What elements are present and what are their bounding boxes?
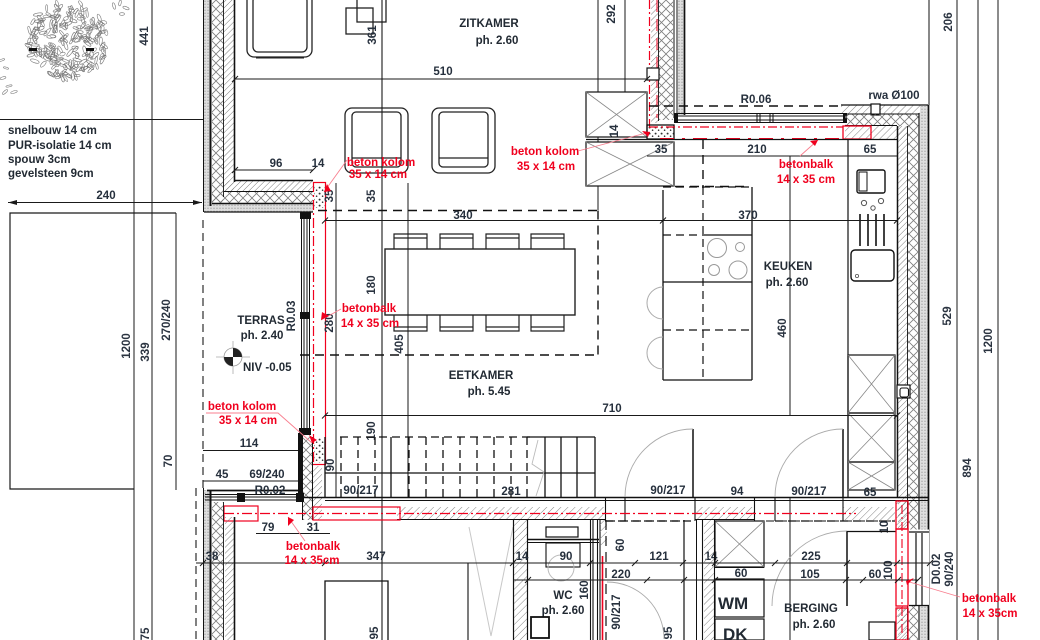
svg-text:90/217: 90/217 bbox=[343, 485, 378, 497]
svg-text:beton kolom: beton kolom bbox=[511, 146, 579, 158]
svg-text:240: 240 bbox=[96, 190, 115, 202]
svg-text:160: 160 bbox=[579, 580, 591, 599]
svg-text:90/240: 90/240 bbox=[944, 551, 956, 586]
svg-text:beton kolom: beton kolom bbox=[208, 401, 276, 413]
svg-text:60: 60 bbox=[615, 539, 627, 552]
svg-text:14 x 35cm: 14 x 35cm bbox=[285, 555, 340, 567]
svg-text:TERRAS: TERRAS bbox=[237, 315, 285, 327]
svg-text:snelbouw 14 cm: snelbouw 14 cm bbox=[8, 125, 97, 137]
svg-text:rwa Ø100: rwa Ø100 bbox=[868, 90, 919, 102]
svg-text:ph. 2.60: ph. 2.60 bbox=[476, 35, 519, 47]
svg-text:38: 38 bbox=[206, 551, 219, 563]
svg-text:R0.02: R0.02 bbox=[255, 485, 286, 497]
svg-text:114: 114 bbox=[240, 438, 259, 450]
svg-text:190: 190 bbox=[366, 421, 378, 440]
svg-text:beton kolom: beton kolom bbox=[347, 157, 415, 169]
svg-text:180: 180 bbox=[366, 275, 378, 294]
svg-text:D0.02: D0.02 bbox=[931, 554, 943, 585]
svg-text:405: 405 bbox=[394, 334, 406, 354]
svg-text:90/217: 90/217 bbox=[791, 486, 826, 498]
svg-text:95: 95 bbox=[369, 626, 381, 639]
svg-text:PUR-isolatie 14 cm: PUR-isolatie 14 cm bbox=[8, 140, 112, 152]
svg-text:NIV -0.05: NIV -0.05 bbox=[243, 362, 292, 374]
svg-text:spouw 3cm: spouw 3cm bbox=[8, 154, 71, 166]
svg-text:ph. 2.60: ph. 2.60 bbox=[766, 277, 809, 289]
svg-text:31: 31 bbox=[307, 522, 320, 534]
svg-text:R0.06: R0.06 bbox=[741, 94, 772, 106]
svg-text:betonbalk: betonbalk bbox=[286, 541, 341, 553]
svg-text:529: 529 bbox=[942, 306, 954, 325]
svg-text:1200: 1200 bbox=[121, 333, 133, 359]
svg-text:WM: WM bbox=[718, 594, 748, 613]
svg-text:347: 347 bbox=[366, 551, 385, 563]
svg-text:90/217: 90/217 bbox=[611, 594, 623, 629]
svg-text:340: 340 bbox=[453, 210, 472, 222]
svg-text:betonbalk: betonbalk bbox=[962, 593, 1017, 605]
svg-text:270/240: 270/240 bbox=[161, 299, 173, 341]
svg-text:ph. 2.60: ph. 2.60 bbox=[793, 619, 836, 631]
svg-text:ph. 5.45: ph. 5.45 bbox=[468, 386, 511, 398]
svg-text:ph. 2.40: ph. 2.40 bbox=[241, 330, 284, 342]
svg-text:betonbalk: betonbalk bbox=[342, 303, 397, 315]
svg-text:DK: DK bbox=[723, 625, 748, 640]
svg-text:35: 35 bbox=[655, 144, 668, 156]
svg-text:gevelsteen 9cm: gevelsteen 9cm bbox=[8, 168, 94, 180]
svg-text:35 x 14 cm: 35 x 14 cm bbox=[219, 415, 277, 427]
svg-text:220: 220 bbox=[611, 569, 630, 581]
svg-text:14: 14 bbox=[516, 551, 529, 563]
svg-text:70: 70 bbox=[163, 455, 175, 468]
svg-text:90/217: 90/217 bbox=[650, 485, 685, 497]
svg-text:65: 65 bbox=[864, 487, 877, 499]
svg-text:ZITKAMER: ZITKAMER bbox=[459, 18, 519, 30]
svg-text:94: 94 bbox=[731, 486, 744, 498]
svg-text:75: 75 bbox=[140, 627, 152, 640]
svg-text:ph. 2.60: ph. 2.60 bbox=[542, 605, 585, 617]
svg-text:96: 96 bbox=[270, 158, 283, 170]
svg-text:95: 95 bbox=[663, 626, 675, 639]
svg-text:105: 105 bbox=[800, 569, 820, 581]
svg-text:60: 60 bbox=[869, 569, 882, 581]
svg-text:14 x 35 cm: 14 x 35 cm bbox=[341, 318, 399, 330]
svg-text:35 x 14 cm: 35 x 14 cm bbox=[349, 169, 407, 181]
svg-text:R0.03: R0.03 bbox=[286, 301, 298, 332]
svg-text:45: 45 bbox=[216, 469, 229, 481]
svg-text:292: 292 bbox=[606, 4, 618, 23]
svg-text:betonbalk: betonbalk bbox=[779, 159, 834, 171]
svg-text:121: 121 bbox=[649, 551, 669, 563]
svg-text:WC: WC bbox=[553, 590, 572, 602]
svg-text:510: 510 bbox=[433, 66, 452, 78]
svg-text:KEUKEN: KEUKEN bbox=[764, 261, 813, 273]
svg-text:90: 90 bbox=[560, 551, 573, 563]
svg-text:361: 361 bbox=[367, 25, 379, 45]
svg-text:339: 339 bbox=[140, 342, 152, 361]
svg-text:14: 14 bbox=[609, 124, 621, 137]
svg-text:BERGING: BERGING bbox=[784, 603, 838, 615]
svg-text:281: 281 bbox=[501, 486, 521, 498]
svg-text:79: 79 bbox=[262, 522, 275, 534]
svg-text:225: 225 bbox=[801, 551, 821, 563]
svg-text:894: 894 bbox=[962, 458, 974, 478]
svg-text:EETKAMER: EETKAMER bbox=[449, 370, 514, 382]
svg-text:460: 460 bbox=[777, 318, 789, 337]
svg-text:14 x 35 cm: 14 x 35 cm bbox=[777, 174, 835, 186]
svg-text:69/240: 69/240 bbox=[249, 469, 284, 481]
svg-text:90: 90 bbox=[325, 459, 337, 472]
svg-text:60: 60 bbox=[735, 568, 748, 580]
svg-text:65: 65 bbox=[864, 144, 877, 156]
svg-text:35 x 14 cm: 35 x 14 cm bbox=[517, 161, 575, 173]
svg-text:206: 206 bbox=[943, 12, 955, 31]
svg-text:14: 14 bbox=[312, 158, 325, 170]
svg-text:14 x 35cm: 14 x 35cm bbox=[963, 608, 1018, 620]
svg-text:370: 370 bbox=[738, 210, 757, 222]
svg-text:441: 441 bbox=[139, 26, 151, 46]
svg-text:1200: 1200 bbox=[983, 328, 995, 354]
svg-text:35: 35 bbox=[366, 189, 378, 202]
svg-text:210: 210 bbox=[747, 144, 766, 156]
svg-text:710: 710 bbox=[602, 403, 621, 415]
